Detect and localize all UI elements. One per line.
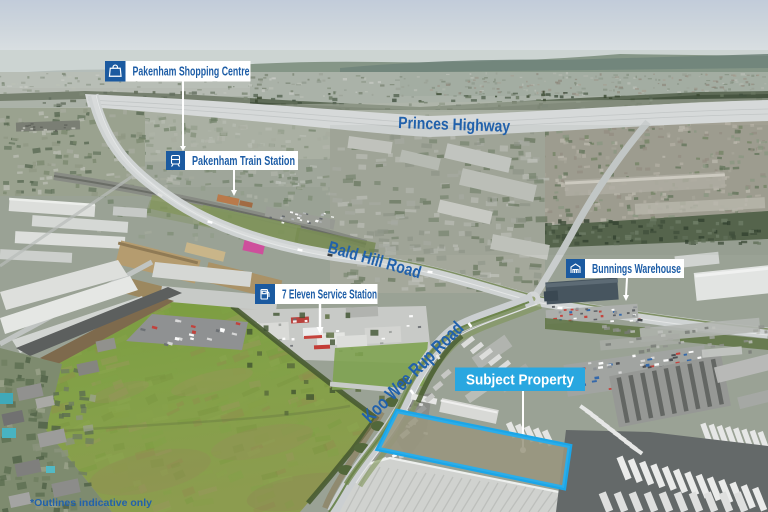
- svg-text:Bunnings Warehouse: Bunnings Warehouse: [592, 262, 681, 276]
- svg-text:Pakenham Train Station: Pakenham Train Station: [192, 154, 295, 168]
- svg-text:Pakenham Shopping Centre: Pakenham Shopping Centre: [133, 65, 250, 79]
- svg-text:7 Eleven Service Station: 7 Eleven Service Station: [282, 287, 377, 301]
- svg-text:Subject Property: Subject Property: [466, 372, 575, 389]
- svg-text:*Outlines indicative only: *Outlines indicative only: [30, 497, 152, 509]
